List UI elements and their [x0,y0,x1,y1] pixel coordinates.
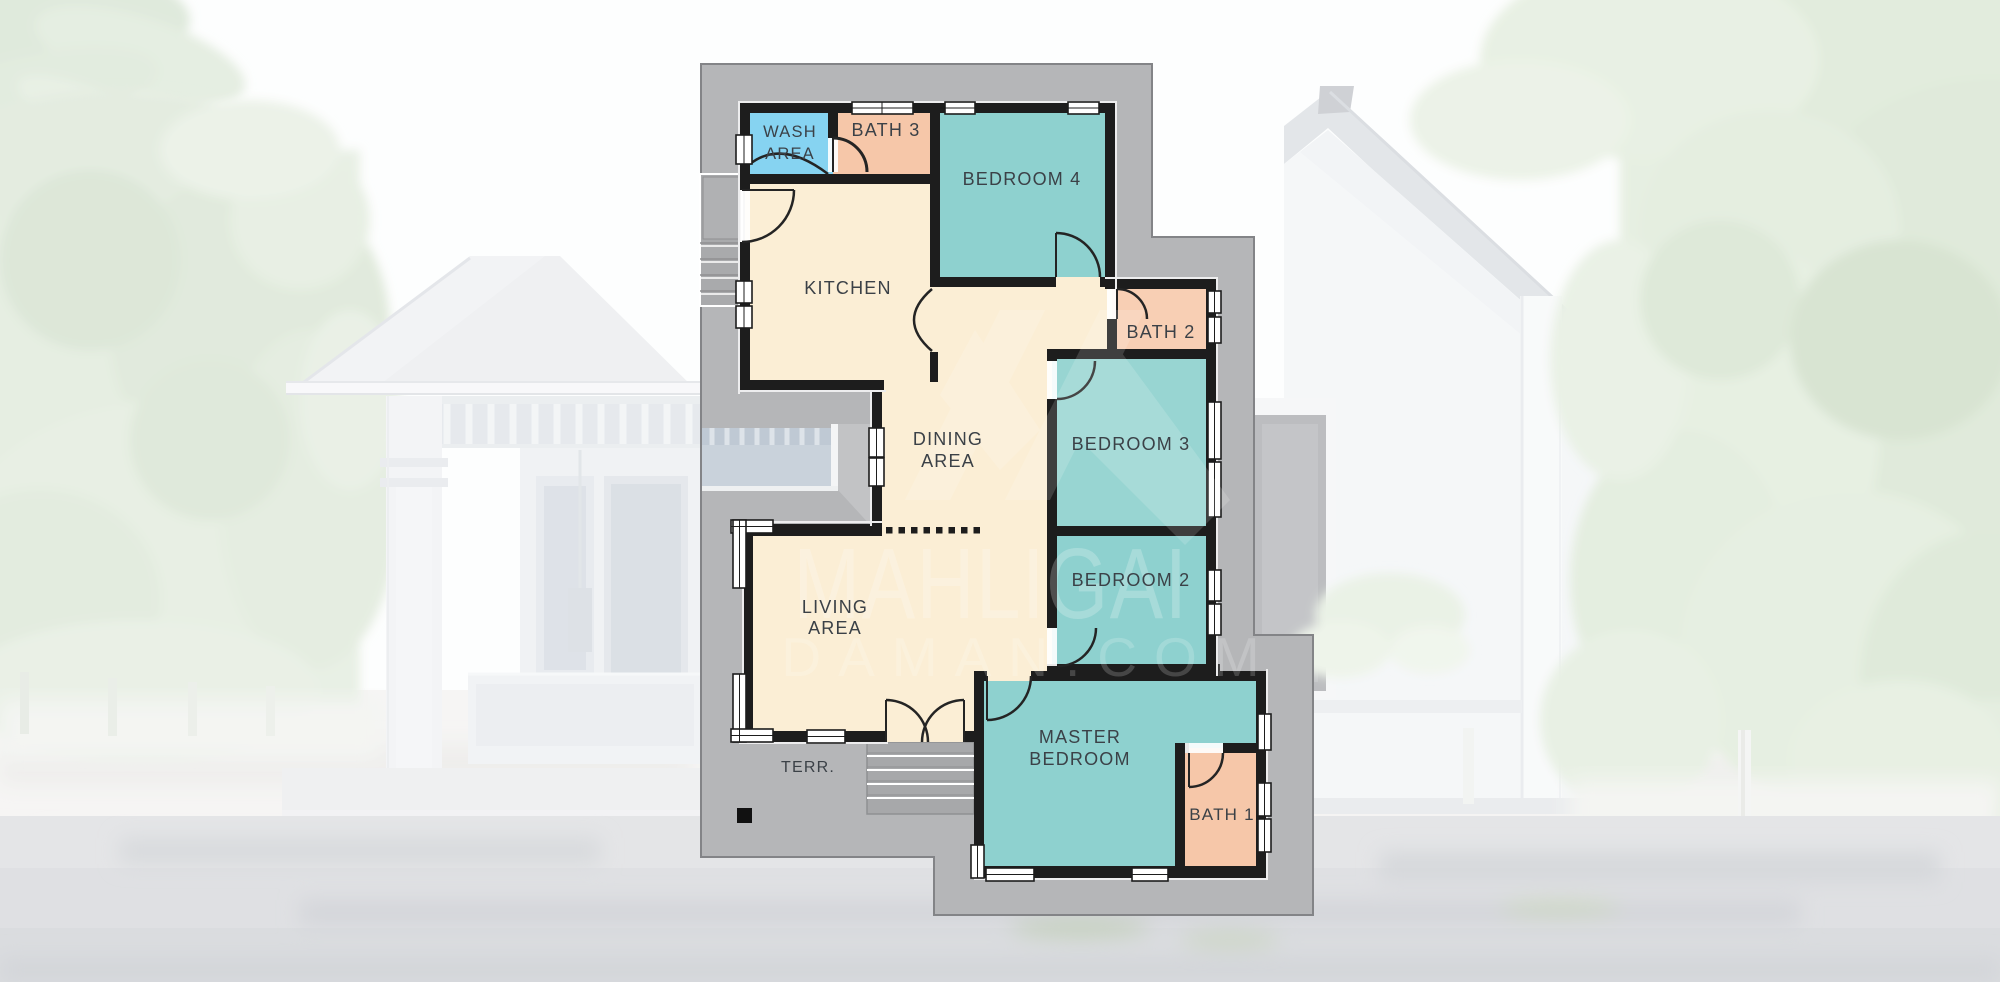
svg-text:DINING: DINING [913,429,983,449]
svg-text:LIVING: LIVING [802,597,868,617]
svg-text:WASH: WASH [763,123,817,141]
svg-text:BATH 1: BATH 1 [1189,805,1254,824]
svg-text:MASTER: MASTER [1039,727,1121,747]
svg-text:BEDROOM 3: BEDROOM 3 [1072,434,1191,454]
svg-text:BEDROOM: BEDROOM [1029,749,1130,769]
svg-text:AREA: AREA [765,145,815,163]
svg-text:BATH 3: BATH 3 [852,120,921,140]
svg-text:KITCHEN: KITCHEN [804,278,891,298]
svg-text:AREA: AREA [808,618,862,638]
svg-text:AREA: AREA [921,451,975,471]
svg-text:BEDROOM 4: BEDROOM 4 [963,169,1082,189]
svg-text:BATH 2: BATH 2 [1127,322,1196,342]
svg-text:BEDROOM 2: BEDROOM 2 [1072,570,1191,590]
svg-text:TERR.: TERR. [781,759,835,776]
